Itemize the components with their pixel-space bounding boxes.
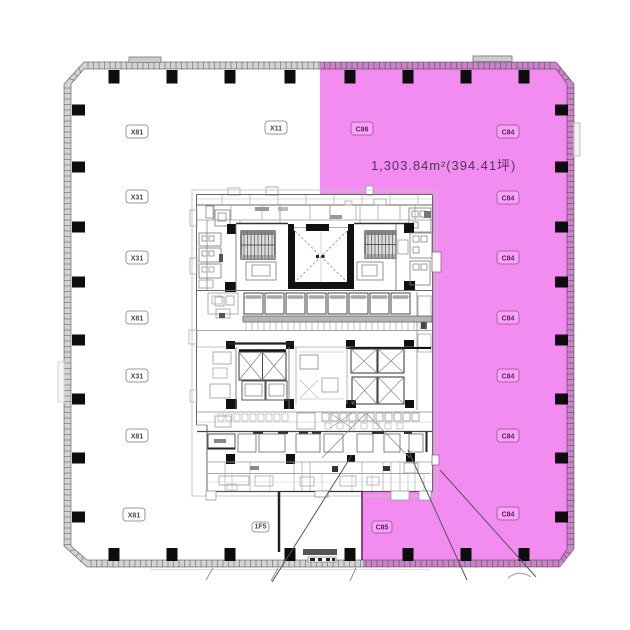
svg-text:X81: X81 <box>128 513 141 520</box>
svg-text:X31: X31 <box>131 195 144 202</box>
svg-text:X31: X31 <box>131 256 144 263</box>
svg-text:1F5: 1F5 <box>254 524 266 531</box>
svg-text:C84: C84 <box>502 316 515 323</box>
svg-text:C84: C84 <box>502 256 515 263</box>
svg-text:1,303.84m²(394.41坪): 1,303.84m²(394.41坪) <box>371 158 516 173</box>
svg-text:X81: X81 <box>131 316 144 323</box>
svg-text:C84: C84 <box>502 196 515 203</box>
svg-text:C86: C86 <box>356 127 369 134</box>
svg-text:X11: X11 <box>270 126 282 133</box>
svg-text:X81: X81 <box>131 434 144 441</box>
svg-text:C84: C84 <box>502 374 515 381</box>
svg-text:X81: X81 <box>131 130 144 137</box>
svg-text:C84: C84 <box>502 434 515 441</box>
svg-text:C84: C84 <box>502 130 515 137</box>
svg-text:X31: X31 <box>131 374 144 381</box>
svg-text:C84: C84 <box>502 512 515 519</box>
svg-text:C85: C85 <box>376 525 389 532</box>
